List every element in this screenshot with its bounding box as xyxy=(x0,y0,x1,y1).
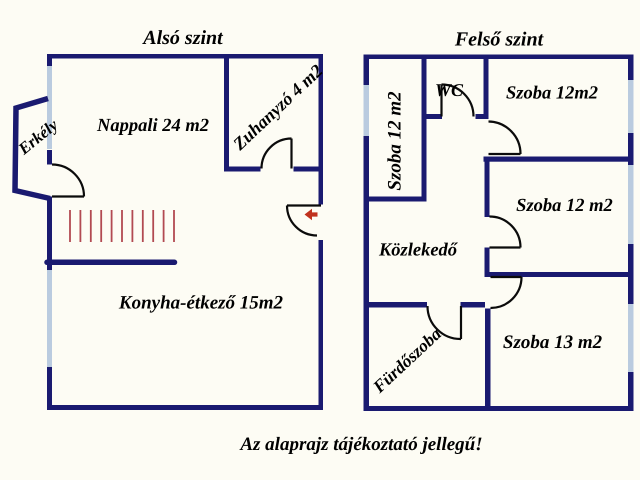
svg-text:Szoba 12m2: Szoba 12m2 xyxy=(506,84,598,104)
svg-text:Szoba 13 m2: Szoba 13 m2 xyxy=(503,332,603,353)
svg-text:Szoba 12 m2: Szoba 12 m2 xyxy=(516,196,613,216)
svg-text:Nappali 24 m2: Nappali 24 m2 xyxy=(96,116,209,136)
svg-text:Az alaprajz tájékoztató jelleg: Az alaprajz tájékoztató jellegű! xyxy=(239,434,482,455)
svg-text:Szoba 12 m2: Szoba 12 m2 xyxy=(385,91,406,191)
svg-text:Felső szint: Felső szint xyxy=(454,29,545,51)
svg-text:Közlekedő: Közlekedő xyxy=(378,241,459,261)
svg-text:WC: WC xyxy=(435,80,464,100)
svg-text:Konyha-étkező 15m2: Konyha-étkező 15m2 xyxy=(118,293,284,314)
svg-text:Alsó szint: Alsó szint xyxy=(141,27,224,49)
